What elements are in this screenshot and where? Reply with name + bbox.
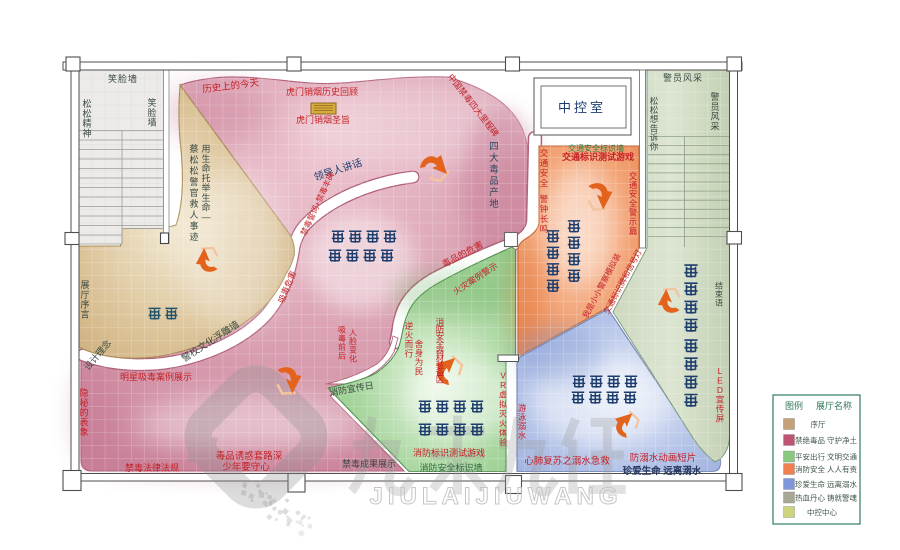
svg-text:D: D bbox=[717, 385, 723, 395]
svg-text:篇: 篇 bbox=[629, 226, 638, 236]
svg-text:禁毒成果展示: 禁毒成果展示 bbox=[342, 458, 396, 469]
svg-text:虚: 虚 bbox=[499, 389, 507, 399]
svg-text:通: 通 bbox=[540, 158, 549, 168]
svg-text:结: 结 bbox=[715, 280, 723, 290]
svg-text:心肺复苏之溺水急救: 心肺复苏之溺水急救 bbox=[524, 455, 610, 467]
svg-text:事: 事 bbox=[189, 220, 198, 231]
svg-text:全: 全 bbox=[540, 178, 549, 188]
svg-text:用: 用 bbox=[201, 144, 210, 154]
svg-text:风: 风 bbox=[710, 112, 719, 122]
svg-text:消防安全 人人有责: 消防安全 人人有责 bbox=[795, 464, 858, 474]
svg-text:神: 神 bbox=[82, 127, 91, 138]
svg-text:人: 人 bbox=[189, 210, 198, 220]
svg-text:脸: 脸 bbox=[147, 107, 156, 118]
svg-text:言: 言 bbox=[80, 308, 89, 319]
svg-text:拟: 拟 bbox=[499, 399, 507, 409]
svg-text:民: 民 bbox=[415, 366, 424, 376]
svg-text:安: 安 bbox=[540, 168, 549, 178]
svg-text:毒: 毒 bbox=[338, 333, 346, 343]
svg-text:区: 区 bbox=[436, 374, 445, 384]
svg-text:L: L bbox=[718, 366, 723, 376]
svg-text:化: 化 bbox=[349, 353, 357, 363]
svg-text:前: 前 bbox=[338, 342, 346, 352]
svg-text:珍爱生命 远离溺水: 珍爱生命 远离溺水 bbox=[623, 465, 702, 477]
svg-text:E: E bbox=[717, 375, 723, 385]
svg-text:图例: 图例 bbox=[785, 400, 803, 411]
svg-text:笑脸墙: 笑脸墙 bbox=[108, 73, 138, 84]
svg-text:珍爱生命 远离溺水: 珍爱生命 远离溺水 bbox=[795, 479, 858, 489]
svg-text:水: 水 bbox=[518, 430, 527, 440]
svg-text:托: 托 bbox=[201, 172, 210, 183]
svg-text:宣: 宣 bbox=[716, 394, 725, 404]
svg-text:—: — bbox=[202, 212, 211, 222]
svg-text:JIULAIJIUWANG: JIULAIJIUWANG bbox=[369, 483, 622, 510]
svg-text:松: 松 bbox=[82, 98, 91, 109]
svg-text:束: 束 bbox=[715, 290, 723, 299]
svg-text:你: 你 bbox=[650, 142, 659, 152]
svg-text:消防安全标识墙: 消防安全标识墙 bbox=[419, 462, 482, 473]
svg-text:虎门销烟圣旨: 虎门销烟圣旨 bbox=[296, 114, 350, 125]
svg-text:传: 传 bbox=[716, 404, 725, 414]
svg-text:警员风采: 警员风采 bbox=[663, 72, 703, 83]
svg-text:四: 四 bbox=[489, 142, 499, 153]
svg-text:松: 松 bbox=[82, 108, 91, 119]
svg-text:举: 举 bbox=[201, 182, 210, 193]
svg-text:毒品诱惑套路深: 毒品诱惑套路深 bbox=[216, 450, 283, 462]
svg-text:屏: 屏 bbox=[716, 413, 725, 423]
svg-text:禁绝毒品 守护净土: 禁绝毒品 守护净土 bbox=[795, 435, 858, 445]
svg-text:展厅名称: 展厅名称 bbox=[816, 400, 852, 411]
svg-text:验: 验 bbox=[499, 437, 507, 447]
svg-text:隐: 隐 bbox=[79, 387, 88, 398]
svg-text:警: 警 bbox=[540, 194, 549, 204]
svg-text:中控室: 中控室 bbox=[558, 100, 606, 115]
svg-text:平安出行 文明交通: 平安出行 文明交通 bbox=[795, 452, 858, 462]
svg-text:热血丹心 铸就警魂: 热血丹心 铸就警魂 bbox=[795, 493, 858, 503]
svg-text:松: 松 bbox=[189, 154, 198, 165]
svg-text:防溺水动画短片: 防溺水动画短片 bbox=[630, 452, 697, 464]
svg-text:明星吸毒案例展示: 明星吸毒案例展示 bbox=[120, 371, 192, 382]
svg-text:精: 精 bbox=[82, 118, 91, 129]
svg-text:松: 松 bbox=[189, 165, 198, 176]
svg-text:官: 官 bbox=[189, 187, 198, 198]
svg-text:品: 品 bbox=[489, 176, 499, 187]
svg-text:警: 警 bbox=[189, 176, 198, 187]
svg-text:蔡: 蔡 bbox=[189, 143, 198, 154]
svg-text:命: 命 bbox=[201, 163, 210, 174]
svg-text:大: 大 bbox=[489, 152, 499, 164]
svg-text:体: 体 bbox=[499, 427, 507, 437]
svg-text:序厅: 序厅 bbox=[811, 419, 826, 429]
svg-text:救: 救 bbox=[189, 198, 198, 209]
svg-text:消防标识测试游戏: 消防标识测试游戏 bbox=[413, 447, 485, 458]
svg-text:序: 序 bbox=[80, 299, 89, 310]
svg-text:的: 的 bbox=[79, 407, 88, 418]
svg-text:V: V bbox=[500, 371, 506, 380]
svg-text:交通标识测试游戏: 交通标识测试游戏 bbox=[562, 151, 634, 162]
svg-text:生: 生 bbox=[201, 153, 210, 164]
svg-text:R: R bbox=[500, 381, 506, 390]
svg-text:少年要守心: 少年要守心 bbox=[222, 461, 270, 473]
svg-text:采: 采 bbox=[710, 121, 719, 131]
svg-text:长: 长 bbox=[540, 214, 549, 224]
svg-text:毒: 毒 bbox=[489, 164, 499, 176]
svg-text:行: 行 bbox=[405, 348, 414, 358]
svg-text:命: 命 bbox=[201, 202, 210, 213]
svg-text:厅: 厅 bbox=[80, 290, 89, 300]
svg-text:交: 交 bbox=[540, 148, 549, 158]
svg-text:员: 员 bbox=[710, 102, 719, 112]
svg-text:生: 生 bbox=[201, 192, 210, 203]
svg-text:产: 产 bbox=[489, 187, 499, 199]
svg-text:火: 火 bbox=[499, 419, 507, 428]
svg-text:地: 地 bbox=[489, 198, 499, 210]
svg-text:展: 展 bbox=[80, 280, 89, 290]
svg-text:禁毒法律法规: 禁毒法律法规 bbox=[125, 462, 179, 473]
svg-text:墙: 墙 bbox=[147, 117, 156, 128]
svg-text:后: 后 bbox=[338, 350, 346, 360]
svg-text:脸: 脸 bbox=[349, 336, 357, 346]
svg-text:变: 变 bbox=[349, 345, 357, 355]
svg-text:表: 表 bbox=[79, 416, 88, 427]
svg-text:语: 语 bbox=[715, 298, 723, 308]
svg-text:象: 象 bbox=[79, 426, 88, 437]
svg-text:中控中心: 中控中心 bbox=[807, 507, 837, 517]
svg-text:虎门销烟历史回顾: 虎门销烟历史回顾 bbox=[286, 86, 358, 97]
svg-text:灭: 灭 bbox=[499, 409, 507, 418]
svg-text:笑: 笑 bbox=[147, 97, 156, 108]
svg-text:秘: 秘 bbox=[79, 397, 88, 408]
svg-text:迹: 迹 bbox=[189, 231, 198, 242]
svg-text:钟: 钟 bbox=[540, 204, 549, 214]
svg-text:鸣: 鸣 bbox=[540, 224, 549, 234]
svg-text:警: 警 bbox=[710, 91, 719, 102]
